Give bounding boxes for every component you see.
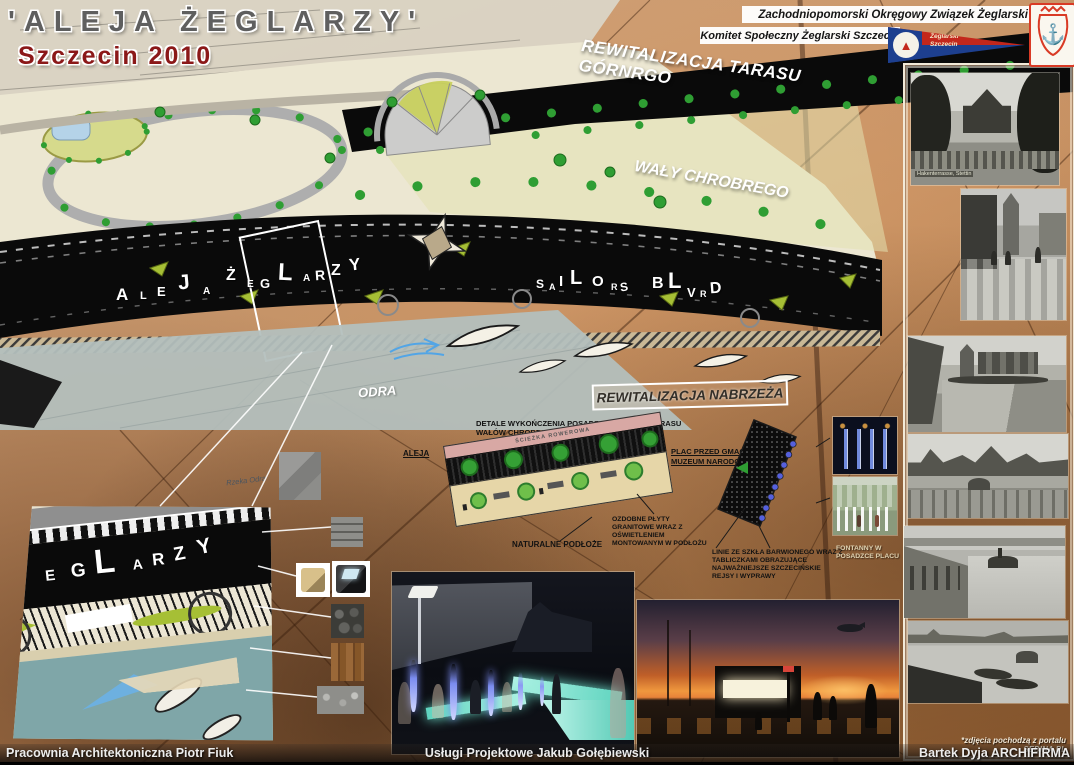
label-rewitalizacja-nabrzeza-text: REWITALIZACJA NABRZEŻA — [596, 385, 783, 405]
inset-letter: R — [151, 550, 165, 568]
plan-letter: Ż — [226, 268, 236, 284]
historic-photo-quay — [904, 526, 1065, 618]
plan-letter: R — [315, 268, 326, 283]
plan-letter: A — [549, 283, 556, 292]
org-line2: Komitet Społeczny Żeglarski Szczecin — [700, 30, 899, 42]
historic-photo-terrace: Hakenterrasse, Stettin — [911, 73, 1059, 185]
aleja-label: ALEJA — [403, 449, 429, 459]
city-crest-logo: ⚓ — [1029, 3, 1074, 67]
svg-text:⚓: ⚓ — [1040, 22, 1065, 46]
plan-letter: D — [709, 281, 722, 298]
inset-letter: Y — [195, 535, 214, 559]
plan-letter: L — [668, 270, 681, 292]
fountain-photo-day — [833, 477, 897, 535]
swatch-sand-cube — [296, 563, 330, 597]
plan-letter: S — [536, 278, 544, 290]
plan-letter: L — [140, 291, 147, 302]
label-rewitalizacja-nabrzeza: REWITALIZACJA NABRZEŻA — [592, 379, 789, 410]
fountains-label: FONTANNY W POSADZCE PLACU — [836, 545, 904, 561]
presentation-board: REWITALIZACJA TARASU GÓRNRGO WAŁY CHROBR… — [0, 0, 1074, 765]
historic-photo-avenue — [908, 336, 1066, 432]
board-title: 'ALEJA ŻEGLARZY' — [8, 6, 424, 39]
swatch-granite-setts — [331, 517, 363, 547]
render-sunset-pavilion — [637, 600, 899, 757]
plan-letter: L — [570, 268, 582, 288]
pennant-emblem: ▲ — [893, 32, 919, 58]
plan-letter: O — [592, 274, 604, 289]
inset-letter: A — [132, 557, 144, 572]
plan-letter: A — [303, 274, 310, 284]
glass-lines-label: LINIE ZE SZKŁA BARWIONEGO WRAZ Z TABLICZ… — [712, 549, 844, 582]
historic-photo-harbor-square — [908, 434, 1068, 518]
plan-letter: A — [116, 286, 128, 303]
historic-photo-wet-street — [961, 189, 1066, 320]
swatch-gravel — [317, 686, 364, 714]
swatch-cobblestone — [331, 604, 364, 638]
swatch-wood-planks — [331, 643, 364, 681]
inset-letter: G — [70, 561, 87, 581]
inset-letter: L — [92, 544, 116, 580]
plan-letter: V — [687, 286, 696, 299]
granite-label: OZDOBNE PŁYTY GRANITOWE WRAZ Z OŚWIETLEN… — [612, 516, 710, 549]
board-subtitle: Szczecin 2010 — [18, 42, 212, 71]
natural-ground-label: NATURALNE PODŁOŻE — [512, 540, 602, 550]
credit-left: Pracownia Architektoniczna Piotr Fiuk — [6, 746, 233, 760]
inset-plan-detail: E G L A R Z Y — [8, 498, 281, 747]
plan-letter: G — [260, 277, 270, 290]
plan-letter: R — [611, 283, 618, 292]
org-strip-1: Zachodniopomorski Okręgowy Związek Żegla… — [742, 6, 1032, 23]
plan-letter: E — [157, 285, 166, 298]
plac-label: PLAC PRZED GMACHEM MUZEUM NARODOWEGO — [671, 447, 773, 468]
inset-letter: E — [45, 568, 57, 584]
historic-photo-caption: Hakenterrasse, Stettin — [915, 171, 973, 177]
river-label: ODRA — [358, 383, 397, 401]
crest-graphic: ⚓ — [1035, 5, 1071, 59]
inset-letter: Z — [172, 544, 187, 565]
plan-letter: Y — [348, 255, 361, 273]
plan-letter: J — [177, 272, 190, 294]
plan-letter: R — [700, 290, 707, 299]
org-strip-2: Komitet Społeczny Żeglarski Szczecin — [700, 27, 900, 44]
plan-letter: I — [559, 274, 563, 289]
swatch-led-paver-cube — [332, 561, 370, 597]
historic-photo-boats — [908, 621, 1068, 703]
plan-letter: B — [652, 276, 664, 292]
fountain-photo-night — [833, 417, 897, 474]
swatch-stone-wall — [279, 452, 321, 500]
pennant-text-line2: Szczecin — [930, 41, 959, 49]
render-night-fountains — [392, 572, 634, 754]
org-line1: Zachodniopomorski Okręgowy Związek Żegla… — [758, 9, 1028, 21]
plan-letter: L — [277, 261, 293, 286]
credit-right: Bartek Dyja ARCHIFIRMA — [919, 746, 1070, 760]
plan-letter: Z — [331, 263, 341, 279]
plan-letter: S — [619, 281, 629, 294]
plan-letter: E — [247, 280, 254, 290]
plan-letter: A — [203, 287, 210, 297]
credit-center: Usługi Projektowe Jakub Gołębiewski — [425, 746, 649, 760]
